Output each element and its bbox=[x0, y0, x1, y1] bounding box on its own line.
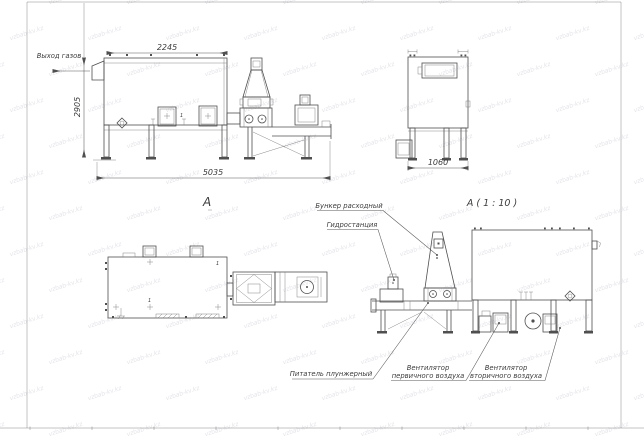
hopper-tower bbox=[240, 58, 273, 108]
fan-primary-label-2: первичного воздуха bbox=[392, 372, 465, 380]
detail-hopper bbox=[425, 232, 455, 288]
dim-5035: 5035 bbox=[203, 168, 223, 177]
end-view-hatch bbox=[418, 63, 457, 78]
detail-top-dots bbox=[474, 228, 590, 230]
fan-secondary-label-1: Вентилятор bbox=[485, 364, 528, 372]
callout-1-plan-a: 1 bbox=[216, 261, 219, 267]
fan-primary-label-1: Вентилятор bbox=[407, 364, 450, 372]
hydrostation-box bbox=[295, 95, 318, 125]
plan-bolts bbox=[105, 262, 232, 318]
dim-anchor-dots bbox=[109, 54, 225, 56]
furnace-hatch-1 bbox=[158, 107, 176, 126]
detail-feeder-head bbox=[424, 288, 456, 301]
secondary-air-fan bbox=[525, 313, 557, 332]
gas-outlet-label: Выход газов bbox=[37, 52, 82, 60]
plan-center-marks bbox=[113, 259, 221, 310]
fan-secondary-label-2: вторичного воздуха bbox=[470, 372, 542, 380]
primary-air-fan bbox=[479, 311, 508, 332]
furnace-hatch-2 bbox=[199, 106, 217, 126]
end-view-mini-dims bbox=[408, 50, 468, 54]
detail-valve-symbol bbox=[565, 291, 575, 301]
furnace-body bbox=[104, 58, 227, 125]
plan-drive-box bbox=[275, 272, 327, 302]
detail-bottom-ticks bbox=[519, 292, 533, 300]
main-side-view: Выход газов 2245 2905 bbox=[37, 3, 331, 181]
valve-symbol bbox=[117, 118, 127, 128]
end-view-legs bbox=[408, 128, 468, 161]
plan-ground-symbol bbox=[117, 308, 125, 319]
end-view: 1060 bbox=[396, 50, 470, 172]
annotation-fan-secondary: Вентилятор вторичного воздуха bbox=[469, 327, 561, 381]
gas-outlet-duct bbox=[92, 61, 104, 80]
plan-body bbox=[108, 257, 227, 318]
dim-2905: 2905 bbox=[73, 97, 82, 117]
dim-2245: 2245 bbox=[157, 43, 177, 52]
annotation-hydrostation: Гидростанция bbox=[327, 221, 395, 281]
annotation-hopper: Бункер расходный bbox=[315, 202, 438, 256]
dim-1060: 1060 bbox=[428, 158, 448, 167]
feeder-label: Питатель плунжерный bbox=[290, 370, 373, 378]
detail-gas-flange bbox=[592, 241, 601, 249]
end-view-top-dots bbox=[410, 55, 467, 57]
furnace-legs bbox=[93, 125, 229, 160]
callout-1-plan-b: 1 bbox=[148, 298, 151, 304]
view-a-label: А bbox=[202, 195, 211, 209]
detail-feeder-tube bbox=[371, 299, 472, 312]
sheet-frame bbox=[0, 2, 644, 430]
detail-truss bbox=[377, 310, 453, 334]
detail-furnace-body bbox=[472, 230, 592, 300]
detail-view-a bbox=[371, 228, 601, 334]
detail-a-label: А ( 1 : 10 ) bbox=[466, 198, 517, 209]
sheet-bottom-ticks bbox=[30, 427, 588, 431]
screenshot-root: { "watermark": { "text": "vzbab-kv.kz" }… bbox=[0, 0, 644, 430]
plan-view: 1 1 bbox=[105, 246, 327, 319]
detail-furnace-legs bbox=[471, 300, 593, 334]
plan-hopper bbox=[233, 272, 275, 305]
end-view-body bbox=[408, 57, 468, 128]
hydrostation-label: Гидростанция bbox=[327, 221, 378, 229]
hopper-label: Бункер расходный bbox=[315, 202, 383, 210]
plan-hatch-strips bbox=[156, 314, 219, 318]
technical-drawing: Выход газов 2245 2905 bbox=[0, 0, 644, 430]
feeder-tube bbox=[272, 121, 331, 139]
callout-1-main: 1 bbox=[180, 113, 183, 119]
feeder-truss bbox=[244, 127, 312, 160]
feeder-head bbox=[227, 108, 272, 127]
detail-hydrostation bbox=[380, 274, 403, 302]
